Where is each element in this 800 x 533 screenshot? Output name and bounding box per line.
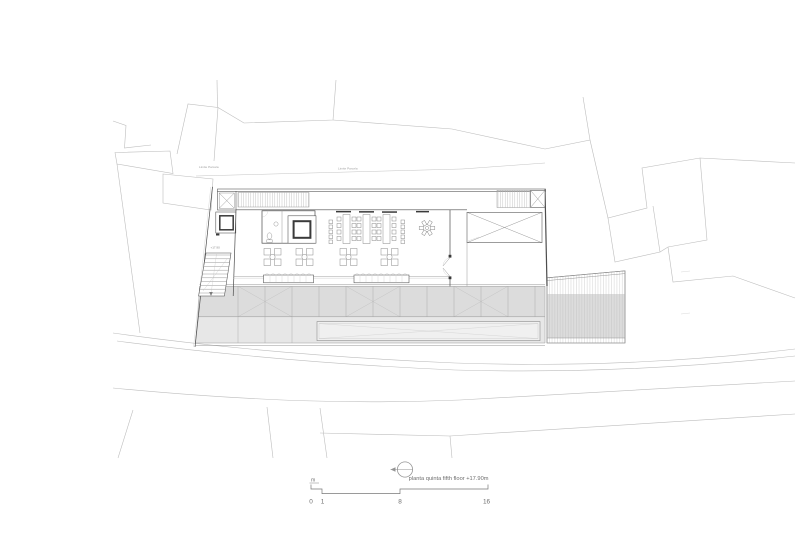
drawing-sheet: Limite Parcela Limite Parcela — [0, 0, 800, 533]
stool-column — [329, 220, 333, 244]
terrace-east-hatched — [547, 268, 625, 343]
lounge-group — [381, 249, 398, 266]
level-marker: +17.90 — [211, 246, 221, 250]
long-table-with-chairs — [357, 215, 376, 244]
stool-column — [401, 220, 405, 244]
street-lines — [113, 333, 795, 458]
lounge-group — [264, 249, 281, 266]
dining-tables — [329, 215, 435, 244]
north-wall — [218, 189, 546, 191]
lounge-group — [296, 249, 313, 266]
elevator-shaft-east — [531, 190, 546, 207]
north-arrow-icon — [391, 462, 413, 477]
skylight-hatch-west — [238, 193, 309, 208]
floor-plan-drawing: Limite Parcela Limite Parcela — [0, 0, 800, 533]
scale-unit-label: m — [311, 478, 315, 484]
roof-void — [467, 212, 542, 286]
lounge-group — [340, 249, 357, 266]
elevator-shaft-west — [218, 191, 237, 210]
scale-tick-0: 0 — [309, 499, 313, 506]
planter-row-east — [354, 273, 409, 283]
boundary-label-right: Limite Parcela — [338, 167, 358, 171]
plan-caption: planta quinta fifth floor +17.90m — [409, 476, 489, 482]
long-table-with-chairs — [377, 215, 396, 244]
lounge-seating — [264, 249, 398, 266]
terrace-south — [195, 284, 545, 345]
scale-tick-16: 16 — [483, 499, 491, 506]
service-room — [216, 212, 236, 236]
planter-row-west — [264, 273, 314, 283]
ceiling-beams — [336, 211, 429, 213]
wc-block — [262, 211, 316, 243]
scale-tick-8: 8 — [398, 499, 402, 506]
basin-icon — [274, 222, 278, 226]
skylight-hatch-east — [497, 190, 531, 207]
toilet-icon — [267, 240, 272, 243]
scale-tick-1: 1 — [321, 499, 325, 506]
east-wall — [545, 190, 547, 287]
boundary-label-left: Limite Parcela — [199, 165, 219, 169]
parcel-boundary: Limite Parcela Limite Parcela — [196, 163, 545, 176]
long-table-with-chairs — [337, 215, 356, 244]
core-shaft — [288, 216, 316, 243]
round-table-radial-chairs — [419, 220, 435, 235]
double-door — [443, 210, 451, 287]
